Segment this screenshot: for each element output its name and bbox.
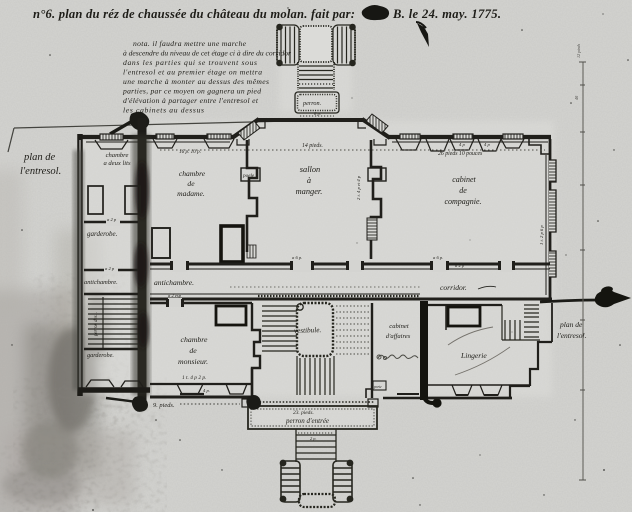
- svg-text:chambre: chambre: [179, 169, 206, 178]
- svg-text:antichambre.: antichambre.: [154, 278, 194, 287]
- svg-text:12 pieds: 12 pieds: [576, 44, 581, 58]
- svg-text:a 6 p.: a 6 p.: [292, 255, 302, 260]
- svg-text:une marche à monter au dessus: une marche à monter au dessus des mêmes: [123, 77, 269, 86]
- svg-text:n°6. plan du réz de chaussée d: n°6. plan du réz de chaussée du château …: [33, 7, 355, 21]
- svg-text:sallon: sallon: [300, 165, 320, 174]
- svg-text:a 2 esp: a 2 esp: [168, 293, 182, 298]
- svg-text:garderobe.: garderobe.: [87, 352, 114, 359]
- svg-text:4 p: 4 p: [484, 142, 490, 147]
- svg-text:madame.: madame.: [177, 189, 205, 198]
- svg-text:l'entresol.: l'entresol.: [20, 166, 61, 177]
- svg-text:a 2 p: a 2 p: [105, 266, 115, 271]
- svg-text:cabinet: cabinet: [452, 175, 476, 184]
- svg-text:monsieur.: monsieur.: [178, 357, 208, 366]
- svg-text:4 p.: 4 p.: [203, 388, 210, 393]
- svg-text:a 2 p: a 2 p: [455, 263, 465, 268]
- svg-text:plan de: plan de: [23, 152, 56, 163]
- svg-text:vestibule.: vestibule.: [294, 326, 322, 335]
- svg-text:compagnie.: compagnie.: [444, 197, 481, 206]
- svg-text:de: de: [187, 179, 195, 188]
- svg-text:a 2 p: a 2 p: [107, 217, 117, 222]
- svg-text:1 t. 4 p 2 p.: 1 t. 4 p 2 p.: [182, 375, 206, 381]
- svg-text:16 p. 10 p.: 16 p. 10 p.: [179, 149, 201, 155]
- svg-text:de: de: [459, 186, 467, 195]
- svg-text:corridor.: corridor.: [440, 283, 467, 292]
- svg-text:à: à: [307, 176, 311, 185]
- svg-text:plan de: plan de: [559, 320, 583, 329]
- svg-text:garderobe.: garderobe.: [87, 230, 118, 238]
- svg-text:9. pieds.: 9. pieds.: [153, 402, 175, 409]
- svg-text:chambre: chambre: [106, 152, 129, 159]
- svg-text:à descendre du niveau de cet é: à descendre du niveau de cet étage ci à …: [123, 49, 291, 58]
- svg-text:a 6 p.: a 6 p.: [433, 255, 443, 260]
- svg-text:perron des...: perron des...: [94, 312, 99, 337]
- svg-text:1 t. 2 p 6 p: 1 t. 2 p 6 p: [539, 225, 544, 245]
- svg-text:manger.: manger.: [296, 187, 323, 196]
- svg-text:parties, par ce moyen on gagne: parties, par ce moyen on gagnera un pied: [122, 87, 261, 96]
- svg-text:2 t. 4 p et 4 p: 2 t. 4 p et 4 p: [356, 175, 361, 200]
- svg-text:perron.: perron.: [302, 100, 321, 107]
- svg-text:porte: porte: [373, 385, 382, 389]
- svg-text:l'entresol et au premier étage: l'entresol et au premier étage on mettra: [123, 68, 262, 77]
- svg-text:de: de: [189, 346, 197, 355]
- svg-text:14 pieds.: 14 pieds.: [302, 142, 323, 149]
- svg-text:antichambre.: antichambre.: [84, 279, 118, 286]
- svg-text:a deux lits: a deux lits: [103, 160, 131, 167]
- svg-text:B. le 24. may. 1775.: B. le 24. may. 1775.: [392, 7, 501, 21]
- svg-text:l'entresol.: l'entresol.: [557, 331, 587, 340]
- svg-text:cabinet: cabinet: [389, 323, 409, 330]
- svg-text:6 p.: 6 p.: [314, 111, 321, 116]
- svg-text:nota. il faudra mettre une mar: nota. il faudra mettre une marche: [133, 39, 247, 48]
- svg-text:2 p.: 2 p.: [310, 436, 317, 441]
- svg-text:chambre: chambre: [181, 335, 209, 344]
- svg-text:Lingerie: Lingerie: [460, 351, 487, 360]
- svg-text:perron d'entrée: perron d'entrée: [285, 417, 329, 425]
- svg-text:d'affaires: d'affaires: [386, 333, 411, 340]
- svg-text:poele: poele: [242, 173, 255, 179]
- svg-text:23. pieds.: 23. pieds.: [293, 410, 314, 416]
- svg-text:26 pieds 10 pouces: 26 pieds 10 pouces: [438, 151, 483, 157]
- svg-text:4 p: 4 p: [459, 142, 465, 147]
- svg-text:dans les parties qui se trouve: dans les parties qui se trouvent sous: [123, 58, 257, 67]
- svg-text:d'élévation à partager entre l: d'élévation à partager entre l'entresol …: [123, 96, 259, 105]
